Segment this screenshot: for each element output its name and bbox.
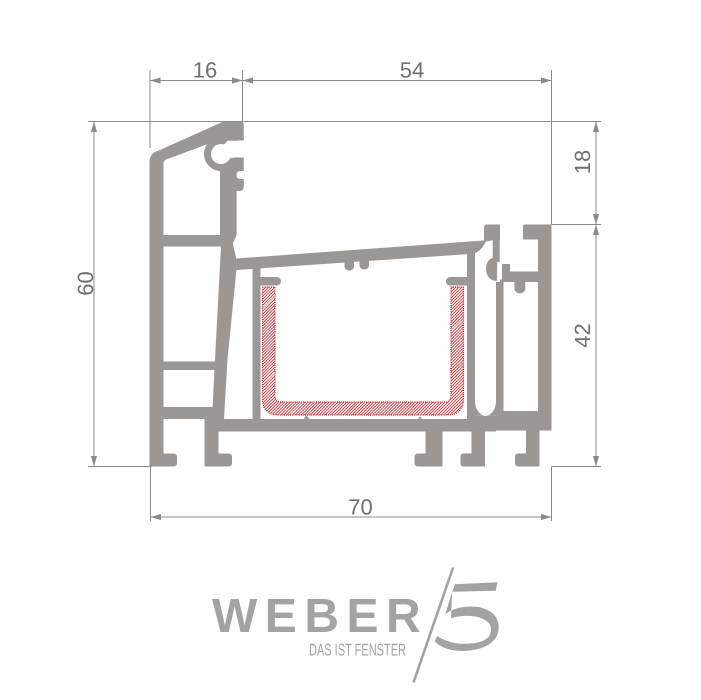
- svg-text:18: 18: [570, 150, 595, 174]
- svg-text:42: 42: [570, 323, 595, 347]
- svg-text:54: 54: [400, 57, 424, 82]
- svg-text:DAS IST FENSTER: DAS IST FENSTER: [309, 641, 406, 660]
- svg-text:70: 70: [348, 494, 372, 519]
- svg-text:60: 60: [73, 271, 98, 295]
- svg-text:16: 16: [193, 57, 217, 82]
- svg-text:WEBER: WEBER: [212, 590, 428, 643]
